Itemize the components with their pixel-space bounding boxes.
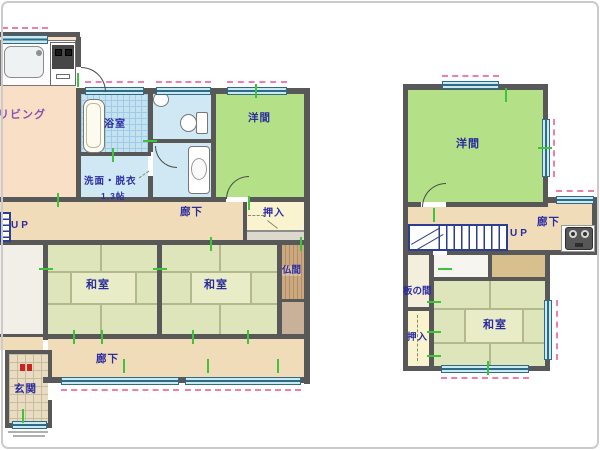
center-mark-tick	[77, 73, 79, 87]
center-mark-tick	[255, 84, 257, 98]
tatami-line	[434, 308, 545, 310]
label-western-1f: 洋間	[248, 113, 271, 124]
tatami-line	[219, 305, 221, 334]
center-mark-tick	[487, 361, 489, 375]
wall	[76, 92, 81, 200]
center-mark-tick	[112, 148, 114, 162]
shutter-dash-line	[156, 81, 211, 83]
wall	[446, 202, 548, 207]
label-up-1f: UP	[11, 221, 31, 231]
center-mark-tick	[101, 330, 103, 344]
tatami-line	[70, 273, 72, 303]
wall	[76, 37, 81, 67]
label-up-2f: UP	[510, 229, 530, 239]
window	[2, 35, 48, 44]
tatami-line	[162, 271, 277, 273]
wall	[429, 277, 550, 281]
wall	[403, 202, 421, 207]
shutter-dash-line	[85, 81, 144, 83]
center-mark-tick	[192, 330, 194, 344]
grill-slot-icon	[56, 74, 70, 79]
wall	[5, 350, 9, 427]
tatami-line	[250, 273, 252, 303]
window	[442, 81, 499, 89]
wall	[43, 334, 309, 339]
hall-lower-left-patch	[0, 337, 43, 350]
entrance-step-line	[13, 435, 45, 437]
center-mark-tick	[207, 359, 209, 373]
label-bath: 浴室	[104, 120, 126, 130]
label-hall-upper-1f: 廊下	[180, 207, 203, 218]
wall	[153, 139, 214, 143]
toilet-bowl-icon	[180, 114, 197, 132]
tatami-line	[522, 310, 524, 342]
shutter-dash-line	[553, 119, 555, 177]
partition-line	[247, 230, 304, 232]
floor-plan-canvas: リビング 浴室 洗面・脱衣 1.3帖 廊下 UP 押入 洋間 和室 和室 仏間 …	[0, 0, 600, 450]
center-mark-tick	[73, 330, 75, 344]
entrance-step-line	[8, 431, 48, 433]
center-mark-tick	[427, 355, 441, 357]
grill-slot-icon	[575, 243, 583, 247]
center-mark-tick	[433, 208, 435, 222]
tatami-line	[100, 245, 102, 271]
tatami-line	[46, 271, 157, 273]
label-butsuma: 仏間	[282, 266, 301, 276]
center-mark-tick	[143, 140, 157, 142]
label-western-2f: 洋間	[456, 139, 480, 150]
wall	[48, 354, 52, 380]
closet-below-butsuma	[282, 302, 304, 334]
wall	[248, 197, 306, 202]
burner-icon	[55, 49, 62, 56]
closet-tan-2f	[492, 255, 545, 277]
shutter-dash-line	[556, 190, 594, 192]
closet-1f-lower-strip	[247, 232, 304, 240]
closet-dash-1f	[248, 215, 264, 216]
toilet-tank-icon	[196, 112, 208, 134]
label-itanoma: 板の間	[403, 287, 432, 297]
center-mark-tick	[153, 268, 167, 270]
label-hall-2f: 廊下	[537, 217, 560, 228]
wall	[157, 245, 162, 337]
wall	[243, 202, 247, 243]
label-entrance: 玄関	[14, 384, 37, 395]
wall	[43, 245, 48, 340]
window	[227, 87, 287, 95]
label-closet-1f: 押入	[263, 209, 285, 219]
wall	[5, 350, 52, 354]
shutter-dash-line	[556, 300, 558, 360]
center-mark-tick	[57, 193, 59, 207]
window	[61, 377, 179, 385]
center-mark-tick	[123, 359, 125, 373]
center-mark-tick	[210, 237, 212, 251]
tatami-line	[489, 344, 491, 366]
window	[185, 377, 301, 385]
shutter-dash-line	[2, 27, 48, 29]
window	[441, 365, 529, 373]
center-mark-tick	[22, 409, 24, 423]
center-mark-tick	[538, 147, 552, 149]
center-mark-tick	[300, 237, 302, 251]
center-mark-tick	[277, 359, 279, 373]
storage-room-1f	[0, 245, 43, 334]
staircase-1f	[0, 212, 11, 242]
tatami-line	[464, 310, 466, 342]
wall	[211, 88, 216, 202]
shutter-dash-line	[442, 75, 499, 77]
label-living: リビング	[0, 110, 46, 121]
burner-icon	[65, 49, 72, 56]
window	[556, 196, 594, 204]
hall-upper-1f	[0, 202, 243, 240]
room-itanoma	[408, 255, 429, 307]
tatami-line	[489, 281, 491, 308]
vanity-bowl-icon	[191, 158, 207, 180]
label-washitsu-right: 和室	[204, 280, 228, 291]
label-washitsu-left: 和室	[86, 280, 110, 291]
center-mark-tick	[39, 268, 53, 270]
center-mark-tick	[427, 301, 441, 303]
label-washroom-size: 1.3帖	[101, 192, 125, 201]
center-mark-tick	[427, 331, 441, 333]
shutter-dash-line	[185, 389, 301, 391]
burner-icon	[581, 230, 589, 238]
label-hall-lower-1f: 廊下	[96, 354, 119, 365]
label-washroom: 洗面・脱衣	[84, 177, 137, 187]
center-mark-tick	[505, 88, 507, 102]
door-arc-living	[81, 67, 106, 92]
window	[156, 87, 211, 95]
entrance-marker-icon	[20, 364, 25, 371]
center-mark-tick	[247, 330, 249, 344]
bathtub-inner-line	[86, 103, 101, 148]
wall	[280, 299, 308, 302]
wall	[429, 255, 434, 371]
wall	[304, 88, 310, 384]
label-closet-2f: 押入	[407, 333, 428, 343]
hall-lower-1f	[48, 339, 304, 377]
shutter-dash-line	[61, 389, 179, 391]
room-western-1f	[216, 94, 304, 197]
tatami-line	[219, 245, 221, 271]
shutter-dash-line	[227, 81, 287, 83]
center-mark-tick	[438, 268, 452, 270]
tatami-line	[135, 273, 137, 303]
window	[544, 300, 552, 360]
burner-icon	[569, 230, 577, 238]
wall	[0, 334, 45, 337]
center-mark-tick	[248, 196, 250, 210]
faucet-icon	[36, 50, 42, 56]
window	[12, 421, 47, 429]
entrance-marker-icon	[27, 364, 32, 371]
itanoma-white-area	[434, 255, 488, 277]
wall	[277, 245, 282, 337]
label-washitsu-2f: 和室	[483, 320, 507, 331]
tatami-line	[190, 273, 192, 303]
shutter-dash-line	[441, 377, 529, 379]
